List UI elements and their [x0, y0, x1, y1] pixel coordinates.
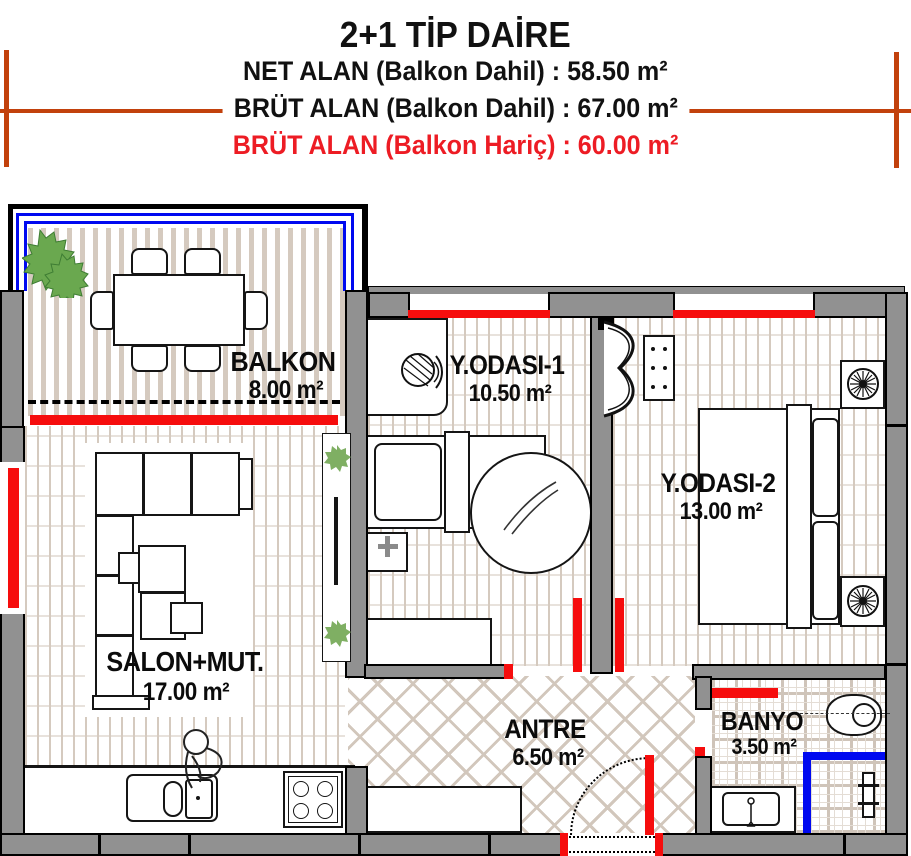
room-label-yodasi1: Y.ODASI-1 — [450, 350, 565, 381]
wall-pier — [548, 292, 675, 318]
wall-antre-banyo-upper — [695, 676, 712, 710]
burner — [317, 803, 333, 819]
wall-right-outer — [885, 292, 908, 835]
plant-icon — [323, 618, 351, 650]
door-jamb-red — [695, 747, 705, 756]
salon-window-red — [8, 468, 19, 608]
radiator-dots — [645, 337, 673, 399]
room-label-balkon: BALKON — [230, 346, 335, 378]
wall-joint — [885, 663, 908, 666]
bedroom1-window-red — [408, 310, 550, 318]
wall — [0, 290, 24, 428]
sofa-cushion — [191, 452, 240, 516]
room-area-antre: 6.50 m² — [512, 744, 583, 772]
shower-fixture-bar — [858, 802, 879, 805]
entrance-door-leaf-red — [645, 755, 654, 835]
window-opening — [410, 294, 548, 310]
room-area-salon: 17.00 m² — [143, 678, 229, 707]
plant-cross-icon — [385, 536, 390, 557]
door-jamb-red — [504, 664, 513, 679]
wall-joint — [885, 424, 908, 427]
entrance-threshold-dotted — [566, 851, 658, 853]
wall-stub — [345, 766, 368, 835]
sofa-armrest — [238, 458, 253, 510]
banyo-door-leaf-red — [712, 688, 778, 698]
shoe-cabinet — [366, 786, 522, 833]
chair — [244, 291, 268, 330]
balcony-outer-wall-right — [362, 204, 368, 294]
dresser — [366, 618, 492, 668]
brut-alan-haric-line: BRÜT ALAN (Balkon Hariç) : 60.00 m² — [0, 130, 911, 161]
wall-joint — [188, 833, 191, 856]
pillow — [812, 521, 839, 620]
floor-plan: 2+1 TİP DAİRE NET ALAN (Balkon Dahil) : … — [0, 0, 911, 856]
pillow — [374, 443, 442, 521]
room-label-antre: ANTRE — [504, 714, 585, 745]
shower-enclosure-blue — [803, 752, 811, 833]
door-jamb-red — [655, 833, 663, 856]
bedroom2-door-leaf-red — [615, 598, 624, 672]
net-alan-line: NET ALAN (Balkon Dahil) : 58.50 m² — [0, 56, 911, 87]
wall-joint — [358, 833, 361, 856]
wall-antre-banyo-lower — [695, 756, 712, 835]
wall-bedroom2-banyo — [692, 664, 886, 680]
bedroom1-door-leaf-red — [573, 598, 582, 672]
burner — [293, 803, 309, 819]
room-area-banyo: 3.50 m² — [731, 734, 796, 760]
tv-icon — [334, 497, 338, 585]
plant-icon — [323, 443, 351, 475]
chair — [184, 345, 221, 372]
bed-runner — [786, 404, 812, 629]
entrance-threshold-dotted — [566, 836, 658, 838]
bed-runner — [444, 431, 470, 533]
wall-pier — [368, 292, 410, 318]
bedroom2-window-red — [673, 310, 815, 318]
toilet-bowl — [852, 703, 876, 727]
room-label-banyo: BANYO — [721, 706, 803, 737]
wall-bedroom1-antre — [364, 664, 506, 679]
flower-icon — [845, 583, 881, 619]
balcony-outer-wall-left — [8, 204, 13, 294]
bedroom2-door-icon — [600, 320, 648, 420]
room-area-yodasi2: 13.00 m² — [680, 498, 763, 526]
shower-fixture-bar — [858, 784, 879, 787]
toilet-centerline — [800, 713, 890, 714]
sofa-cushion — [95, 575, 134, 636]
sofa-cushion — [143, 452, 192, 516]
person-icon — [158, 726, 242, 798]
page-title: 2+1 TİP DAİRE — [0, 14, 911, 56]
room-label-salon: SALON+MUT. — [106, 646, 263, 678]
coffee-table — [138, 545, 186, 593]
sofa-cushion — [95, 452, 144, 516]
room-area-yodasi1: 10.50 m² — [469, 380, 552, 408]
rug-decoration — [490, 468, 570, 548]
wall-joint — [488, 833, 491, 856]
burner — [317, 781, 333, 797]
wall-joint — [98, 833, 101, 856]
flower-icon — [845, 366, 881, 402]
desk-chair-icon — [396, 346, 448, 398]
room-label-yodasi2: Y.ODASI-2 — [661, 468, 776, 499]
pillow — [812, 418, 839, 517]
brut-alan-dahil-line: BRÜT ALAN (Balkon Dahil) : 67.00 m² — [0, 93, 911, 124]
side-stool — [170, 602, 203, 634]
window-opening — [675, 294, 813, 310]
door-jamb-red — [560, 833, 568, 856]
burner — [293, 781, 309, 797]
wall-joint — [843, 833, 846, 856]
wall-bottom-outer — [0, 833, 908, 856]
sofa-armrest — [92, 695, 150, 710]
balcony-outer-wall-top — [8, 204, 368, 209]
room-area-balkon: 8.00 m² — [249, 376, 323, 405]
chair — [131, 345, 168, 372]
plant-icon — [22, 226, 94, 298]
shower-fixture — [862, 772, 875, 818]
faucet-icon — [744, 796, 758, 830]
shower-enclosure-blue — [803, 752, 885, 760]
balcony-window-red — [30, 415, 338, 425]
